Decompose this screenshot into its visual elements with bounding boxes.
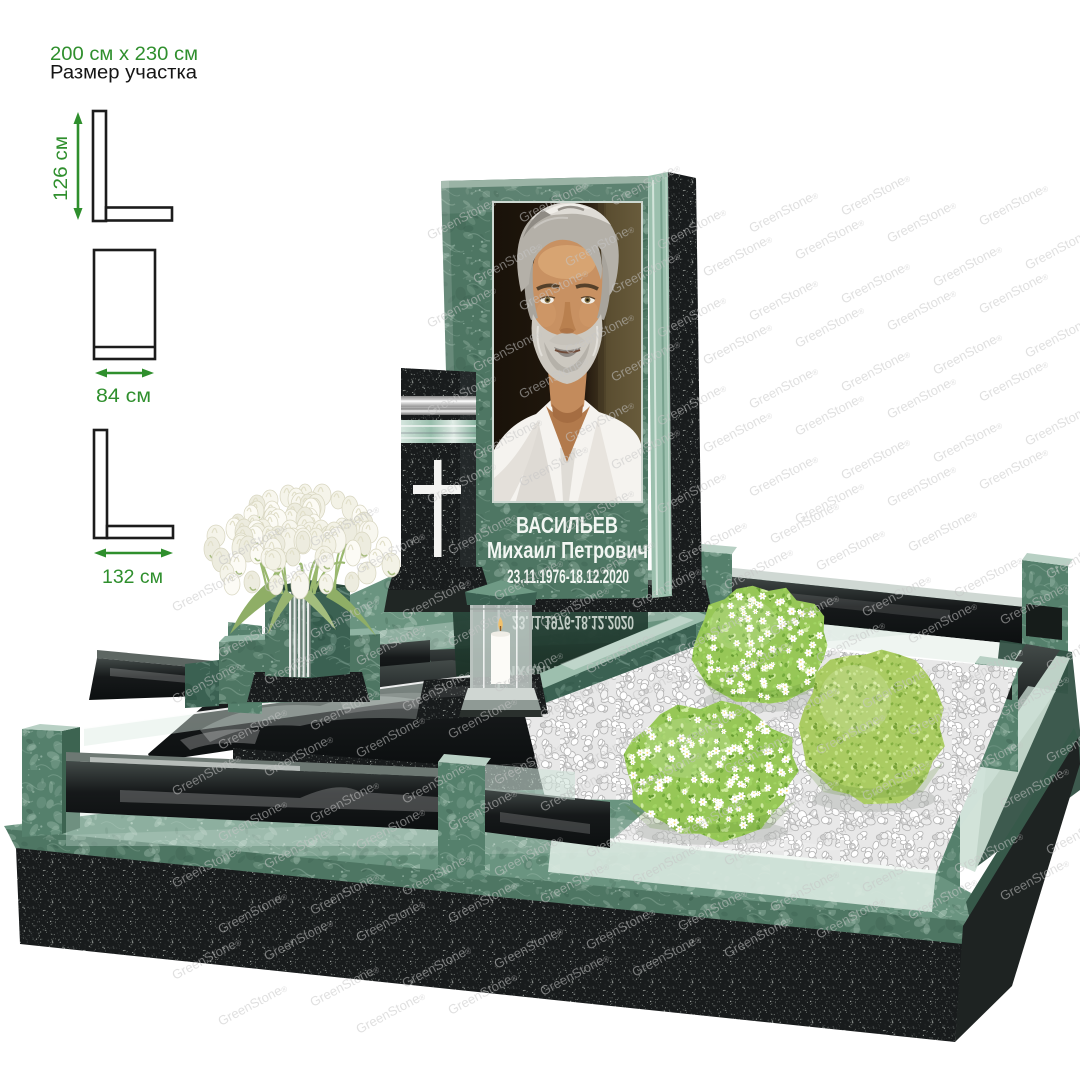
svg-text:GreenStone®: GreenStone® [884, 461, 958, 510]
svg-text:GreenStone®: GreenStone® [930, 241, 1004, 290]
svg-text:GreenStone®: GreenStone® [838, 346, 912, 395]
svg-text:GreenStone®: GreenStone® [746, 363, 820, 412]
svg-text:GreenStone®: GreenStone® [884, 373, 958, 422]
svg-text:GreenStone®: GreenStone® [792, 390, 866, 439]
svg-text:GreenStone®: GreenStone® [215, 980, 289, 1029]
svg-text:GreenStone®: GreenStone® [838, 434, 912, 483]
svg-text:GreenStone®: GreenStone® [813, 525, 887, 574]
svg-text:GreenStone®: GreenStone® [1022, 400, 1080, 449]
svg-text:GreenStone®: GreenStone® [951, 552, 1025, 601]
svg-text:GreenStone®: GreenStone® [930, 417, 1004, 466]
svg-text:GreenStone®: GreenStone® [746, 451, 820, 500]
svg-text:GreenStone®: GreenStone® [838, 258, 912, 307]
svg-text:GreenStone®: GreenStone® [746, 187, 820, 236]
svg-text:GreenStone®: GreenStone® [884, 197, 958, 246]
svg-text:GreenStone®: GreenStone® [884, 285, 958, 334]
svg-text:GreenStone®: GreenStone® [838, 170, 912, 219]
svg-text:GreenStone®: GreenStone® [1022, 224, 1080, 273]
svg-text:84 см: 84 см [96, 386, 151, 407]
svg-text:GreenStone®: GreenStone® [700, 231, 774, 280]
svg-text:GreenStone®: GreenStone® [792, 478, 866, 527]
svg-text:GreenStone®: GreenStone® [976, 180, 1050, 229]
svg-text:GreenStone®: GreenStone® [700, 407, 774, 456]
svg-text:132 см: 132 см [102, 567, 163, 588]
svg-text:GreenStone®: GreenStone® [976, 268, 1050, 317]
svg-text:GreenStone®: GreenStone® [746, 275, 820, 324]
svg-text:126 см: 126 см [51, 136, 72, 201]
svg-text:GreenStone®: GreenStone® [1022, 312, 1080, 361]
svg-text:GreenStone®: GreenStone® [905, 506, 979, 555]
svg-text:GreenStone®: GreenStone® [792, 214, 866, 263]
svg-text:GreenStone®: GreenStone® [792, 302, 866, 351]
svg-text:GreenStone®: GreenStone® [700, 319, 774, 368]
svg-text:GreenStone®: GreenStone® [353, 988, 427, 1037]
svg-text:GreenStone®: GreenStone® [976, 444, 1050, 493]
svg-text:GreenStone®: GreenStone® [930, 329, 1004, 378]
svg-text:GreenStone®: GreenStone® [976, 356, 1050, 405]
svg-text:Размер участка: Размер участка [50, 63, 197, 84]
